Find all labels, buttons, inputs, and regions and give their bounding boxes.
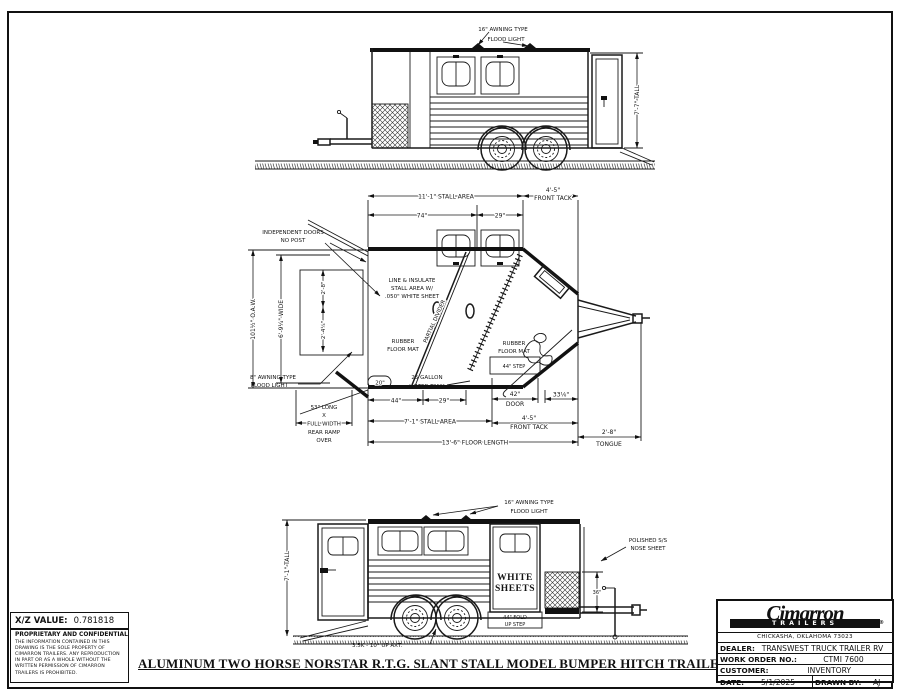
step-label: 44" STEP — [503, 364, 526, 370]
ramp-label: REAR RAMP — [308, 430, 341, 436]
flood-light-icon — [472, 43, 484, 48]
dealer-value: TRANSWEST TRUCK TRAILER RV — [755, 644, 890, 653]
dim-stall-area-top: 11'-1" STALL AREA — [418, 194, 475, 201]
side-view-elevation: WHITE SHEETS 44" FOLD UP STEP — [282, 500, 688, 649]
water-tank-label: WATER TANK — [409, 384, 445, 390]
dim-33: 33⅛" — [553, 392, 569, 399]
date-value: 5/1/2025 — [744, 678, 812, 687]
dealer-label: DEALER: — [720, 644, 755, 653]
axle-label: 3.5K - 10° UP AXT. — [352, 643, 403, 649]
drawing-sheet: 16" AWNING TYPE FLOOD LIGHT 7'-7" TALL — [0, 0, 900, 695]
white-sheets-label: SHEETS — [495, 584, 535, 594]
rear-ramp-outline — [300, 270, 363, 355]
dealer-row: DEALER: TRANSWEST TRUCK TRAILER RV — [718, 642, 892, 653]
line-insulate-label: STALL AREA W/ — [391, 286, 433, 292]
drawing-title: ALUMINUM TWO HORSE NORSTAR R.T.G. SLANT … — [138, 656, 716, 672]
line-insulate-label: LINE & INSULATE — [389, 278, 436, 284]
dim-44: 44" — [391, 398, 402, 405]
customer-value: INVENTORY — [769, 666, 891, 675]
dim-2-4: 2'-4¼" — [321, 321, 327, 339]
line-insulate-label: .050" WHITE SHEET — [385, 294, 440, 300]
flood-light-label: 16" AWNING TYPE — [504, 500, 554, 506]
independent-doors-label: NO POST — [281, 238, 306, 244]
nose-sheet-label: POLISHED S/S — [629, 538, 668, 544]
dim-front-tack-top: 4'-5" — [546, 187, 560, 194]
dim-42-door: DOOR — [506, 401, 524, 408]
oaw-dim: 101½" O.A.W. — [250, 298, 257, 339]
tongue-frame — [578, 300, 650, 338]
window — [378, 527, 422, 555]
tie-ring — [466, 304, 474, 318]
gravel-guard — [545, 572, 579, 608]
rubber-mat-front-label: RUBBER — [503, 341, 526, 347]
tack-room-door: WHITE SHEETS — [490, 524, 540, 612]
brand-sub: TRAILERS — [772, 620, 838, 627]
height-dim: 7'-7" TALL — [634, 84, 641, 115]
dim-stall-area-bottom: 7'-1" STALL AREA — [404, 419, 457, 426]
brand-address: CHICKASHA, OKLAHOMA 73023 — [718, 632, 892, 642]
window — [437, 55, 475, 94]
dim-74: 74" — [417, 213, 428, 220]
date-row: DATE: 5/1/2025 DRAWN BY: AJ — [718, 675, 892, 688]
work-order-row: WORK ORDER NO.: CTMI 7600 — [718, 653, 892, 664]
top-view-elevation: 16" AWNING TYPE FLOOD LIGHT 7'-7" TALL — [255, 27, 655, 170]
date-cell: DATE: 5/1/2025 — [718, 676, 812, 688]
independent-doors-label: INDEPENDENT DOORS — [262, 230, 324, 236]
drawn-by-cell: DRAWN BY: AJ — [812, 676, 892, 688]
side-slats — [368, 560, 490, 602]
awning-light-label: FLOOD LIGHT — [251, 383, 289, 389]
window — [424, 527, 468, 555]
ramp-edge — [300, 621, 366, 638]
sheet-border — [8, 12, 892, 688]
fold-step-label: 44" FOLD — [503, 615, 527, 621]
flood-light-label: 16" AWNING TYPE — [478, 27, 528, 33]
plan-view: 11'-1" STALL AREA 4'-5" FRONT TACK 74" 2… — [248, 187, 650, 448]
proprietary-body: THE INFORMATION CONTAINED IN THIS DRAWIN… — [15, 640, 124, 677]
hitch — [580, 586, 647, 639]
white-sheets-label: WHITE — [497, 573, 533, 583]
xz-value-box: X/Z VALUE: 0.781818 — [10, 612, 129, 629]
customer-label: CUSTOMER: — [720, 666, 769, 675]
dim-tongue: TONGUE — [595, 441, 622, 448]
drawn-by-label: DRAWN BY: — [815, 678, 861, 687]
xz-label: X/Z VALUE: — [15, 616, 68, 626]
water-tank-label: 25 GALLON — [411, 375, 442, 381]
rear-door-open — [318, 524, 368, 620]
dim-tongue: 2'-8" — [602, 429, 616, 436]
fold-step-label: UP STEP — [505, 622, 526, 628]
height-dim: 7'-1" TALL — [284, 550, 291, 581]
dim-front-tack-top: FRONT TACK — [534, 195, 573, 202]
flood-light-label: FLOOD LIGHT — [510, 509, 548, 515]
flood-light-icon — [460, 515, 472, 520]
trailer-drawing-canvas: 16" AWNING TYPE FLOOD LIGHT 7'-7" TALL — [0, 0, 900, 695]
dim-front-tack-bottom: 4'-5" — [522, 415, 536, 422]
ramp-label: FULL WIDTH — [307, 422, 341, 428]
title-block: Cimarron TRAILERS ® CHICKASHA, OKLAHOMA … — [716, 599, 894, 683]
brand-banner: TRAILERS ® — [730, 619, 880, 628]
flood-light-icon — [420, 515, 432, 520]
customer-row: CUSTOMER: INVENTORY — [718, 664, 892, 675]
hitch — [313, 110, 372, 145]
ramp-label: X — [322, 413, 326, 419]
rear-door-open — [592, 55, 622, 148]
date-label: DATE: — [718, 678, 744, 687]
dim-floor-length: 13'-6" FLOOR LENGTH — [442, 440, 508, 447]
registered-mark: ® — [879, 619, 888, 628]
awning-light-label: 8" AWNING TYPE — [250, 375, 297, 381]
dim-20: 20" — [375, 381, 385, 387]
rubber-mat-label: FLOOR MAT — [387, 347, 419, 353]
xz-value: 0.781818 — [74, 616, 115, 626]
proprietary-title: PROPRIETARY AND CONFIDENTIAL — [15, 632, 124, 638]
window — [481, 55, 519, 94]
ramp-label: OVER — [316, 438, 331, 444]
dim-42-door: 42" — [510, 391, 521, 398]
dim-2-8: 2'-8" — [321, 281, 327, 294]
work-order-label: WORK ORDER NO.: — [720, 655, 797, 664]
ramp-label: 53" LONG — [311, 405, 338, 411]
dim-29b: 29" — [439, 398, 450, 405]
flood-light-label: FLOOD LIGHT — [487, 37, 525, 43]
wide-dim: 6'-9¼" WIDE — [278, 300, 285, 338]
gravel-guard — [372, 104, 408, 148]
work-order-value: CTMI 7600 — [797, 655, 890, 664]
dim-front-tack-bottom: FRONT TACK — [510, 424, 549, 431]
nose-sheet-label: NOSE SHEET — [630, 546, 666, 552]
dim-29: 29" — [495, 213, 506, 220]
brand-logo: Cimarron TRAILERS ® — [718, 601, 892, 632]
proprietary-box: PROPRIETARY AND CONFIDENTIAL THE INFORMA… — [10, 629, 129, 683]
dim-36: 36" — [593, 590, 602, 596]
fenders — [478, 126, 570, 150]
rubber-mat-label: RUBBER — [392, 339, 415, 345]
drawn-by-value: AJ — [861, 678, 892, 687]
rubber-mat-front-label: FLOOR MAT — [498, 349, 530, 355]
